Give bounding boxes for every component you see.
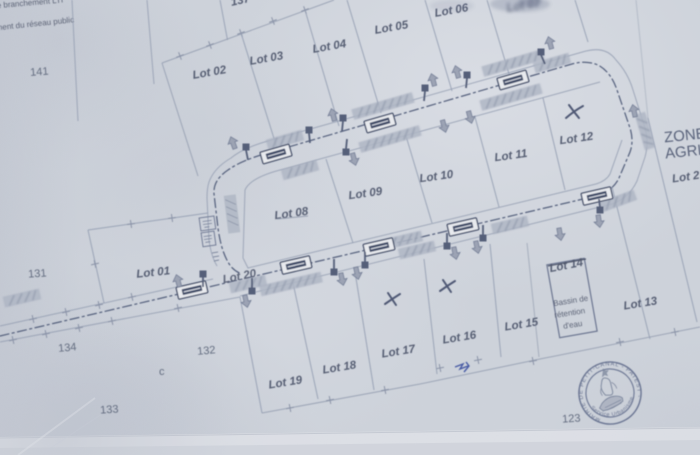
svg-text:132: 132 <box>197 344 216 358</box>
svg-text:123: 123 <box>562 412 581 425</box>
svg-text:131: 131 <box>28 267 47 280</box>
svg-text:133: 133 <box>100 403 119 416</box>
svg-text:c: c <box>159 366 165 378</box>
svg-text:134: 134 <box>58 341 77 355</box>
svg-text:141: 141 <box>30 66 49 79</box>
